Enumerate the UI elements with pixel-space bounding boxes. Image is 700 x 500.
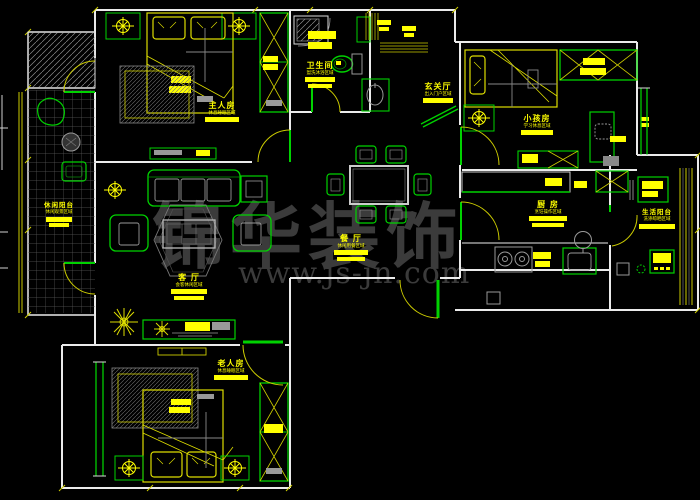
annotation-bar: [308, 42, 332, 49]
room-label-bathroom: 卫生间 盥洗沐浴区域: [305, 61, 335, 88]
window: [638, 88, 650, 155]
dimension-text-bar: [46, 217, 72, 222]
sofa-three-seat: [148, 170, 240, 206]
potted-plant: [110, 308, 138, 336]
dining-room: [327, 146, 431, 223]
annotation-bar: [404, 33, 414, 37]
annotation-bar: [308, 31, 336, 39]
living-room: [104, 170, 271, 339]
dining-chairs: [327, 146, 431, 223]
drain-icon: [637, 265, 645, 273]
kitchen: [462, 171, 628, 304]
kids-room-door: [461, 127, 499, 165]
entrance-door: [400, 280, 438, 318]
elder-wardrobe: [260, 383, 288, 481]
corridor-fixture: [487, 292, 500, 304]
duct-box: [603, 156, 619, 166]
dimension-text-bar: [305, 77, 335, 82]
dimension-text-bar: [334, 250, 368, 255]
hall-cabinet: [357, 17, 370, 42]
dimension-text-bar: [214, 375, 248, 380]
balcony-rail: [680, 168, 692, 305]
annotation-bar: [169, 407, 190, 413]
single-bed: [465, 50, 557, 107]
upper-cabinets: [462, 172, 587, 192]
washing-machine: [650, 250, 674, 273]
room-label-kitchen: 厨 房 烹饪操作区域: [529, 200, 567, 227]
annotation-bar: [171, 399, 191, 405]
kids-wardrobe: [560, 50, 637, 80]
master-tv-cabinet: [150, 148, 216, 159]
room-label-dining-room: 餐 厅 休闲用餐区域: [334, 234, 368, 261]
stove: [495, 247, 532, 272]
coffee-table: [163, 220, 215, 248]
vanity-sink: [362, 79, 389, 111]
annotation-bar: [377, 20, 391, 25]
bed-runner: [488, 64, 557, 107]
side-table: [241, 176, 267, 202]
dimension-text-bar: [308, 84, 332, 88]
study-desk: [590, 112, 626, 162]
dimension-text-bar: [639, 224, 675, 229]
dimension-text-bar: [521, 130, 553, 135]
dimension-text-bar: [337, 257, 365, 261]
dimension-text-bar: [171, 289, 207, 294]
kitchen-sink: [563, 232, 596, 275]
dimension-text-bar: [529, 216, 567, 221]
hexagon-rug: [154, 205, 222, 276]
tv-unit: [143, 320, 235, 339]
floor-plan-canvas: 锦华装饰 www.js-jn.com: [0, 0, 700, 500]
dimension-text-bar: [423, 98, 453, 103]
master-rug: [120, 66, 194, 123]
room-label-master-bedroom: 主人房 休息睡眠区域: [205, 101, 239, 122]
dresser: [158, 348, 206, 355]
dining-table: [350, 166, 408, 204]
doormat-stripes: [380, 43, 428, 52]
open-door-leaf: [421, 106, 458, 127]
planter-box: [28, 32, 95, 88]
leisure-balcony: [19, 32, 95, 313]
balcony-rail: [19, 92, 22, 313]
dimension-extension-lines: [0, 95, 8, 268]
small-plant: [154, 321, 170, 337]
annotation-bar: [533, 252, 551, 259]
cabinet-x-box: [596, 171, 628, 192]
annotation-bar: [402, 26, 416, 31]
dimension-text-bar: [205, 117, 239, 122]
low-cabinet: [518, 151, 578, 168]
ceiling-lamp-icon: [468, 109, 490, 127]
elder-room-door: [243, 342, 283, 385]
dimension-text-bar: [49, 223, 69, 227]
window: [93, 362, 106, 476]
room-label-leisure-balcony: 休闲阳台 休闲观景区域: [44, 202, 74, 227]
annotation-bar: [379, 27, 389, 31]
dimension-text-bar: [174, 296, 204, 300]
annotation-bar: [535, 261, 550, 267]
kids-room: [464, 50, 650, 168]
armchair-left: [110, 215, 148, 251]
annotation-bar-gray: [197, 394, 214, 399]
ceiling-lamp-icon: [224, 459, 246, 477]
room-label-kids-room: 小孩房 学习休息区域: [521, 114, 553, 135]
room-label-service-balcony: 生活阳台 洗涤晾晒区域: [639, 209, 675, 229]
ceiling-lamp-icon: [112, 17, 134, 35]
room-label-living-room: 客 厅 会客休闲区域: [171, 273, 207, 300]
master-bedroom: [106, 13, 288, 159]
master-bedroom-door: [258, 130, 290, 162]
room-label-elder-room: 老人房 休息睡眠区域: [214, 359, 248, 380]
room-label-entry-hall: 玄关厅 出入门户区域: [423, 82, 453, 103]
elder-room: [93, 348, 288, 482]
master-wardrobe: [260, 13, 288, 112]
ceiling-lamp-icon: [104, 181, 126, 199]
bathroom-door: [312, 84, 340, 112]
floor-drain-box: [617, 263, 629, 275]
ceiling-lamp-icon: [228, 17, 250, 35]
service-balcony-door: [610, 205, 637, 246]
elder-rug: [112, 368, 198, 428]
kitchen-door: [461, 202, 499, 240]
utility-cabinet: [630, 177, 668, 202]
armchair-right: [233, 215, 271, 251]
ceiling-lamp-icon: [118, 459, 140, 477]
toilet: [332, 54, 363, 74]
dimension-text-bar: [532, 223, 564, 227]
entry-hall: [357, 13, 458, 127]
